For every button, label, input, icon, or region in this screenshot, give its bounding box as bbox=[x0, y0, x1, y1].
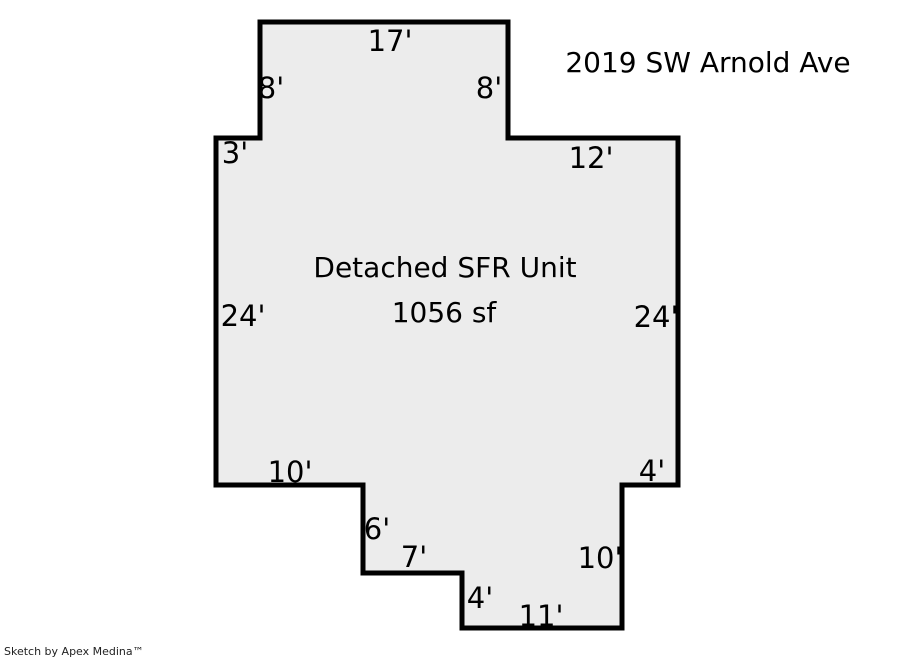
dimension-label-lower-right: 10' bbox=[578, 541, 623, 575]
dimension-label-bottom-step-left: 6' bbox=[364, 512, 390, 546]
sketch-page: 17' 8' 12' 24' 4' 10' 11' 4' 7' 6' 10' 2… bbox=[0, 0, 900, 660]
dimension-label-bottom-step: 7' bbox=[401, 540, 427, 574]
dimension-label-top: 17' bbox=[368, 24, 413, 58]
building-area-label: 1056 sf bbox=[392, 296, 498, 329]
property-address: 2019 SW Arnold Ave bbox=[565, 46, 850, 79]
building-type-label: Detached SFR Unit bbox=[313, 251, 576, 284]
floorplan-sketch: 17' 8' 12' 24' 4' 10' 11' 4' 7' 6' 10' 2… bbox=[0, 0, 900, 660]
dimension-label-right-notch-top: 4' bbox=[639, 454, 665, 488]
dimension-label-left-step-top: 3' bbox=[222, 136, 248, 170]
dimension-label-bottom: 11' bbox=[519, 599, 564, 633]
dimension-label-bottom-notch-left: 4' bbox=[467, 581, 493, 615]
dimension-label-upper-right: 8' bbox=[476, 71, 502, 105]
dimension-label-lower-left: 10' bbox=[268, 455, 313, 489]
dimension-label-left: 24' bbox=[221, 299, 266, 333]
dimension-label-right-step-top: 12' bbox=[569, 141, 614, 175]
dimension-label-right: 24' bbox=[634, 300, 679, 334]
sketch-attribution: Sketch by Apex Medina™ bbox=[4, 645, 144, 658]
dimension-label-upper-left: 8' bbox=[258, 71, 284, 105]
